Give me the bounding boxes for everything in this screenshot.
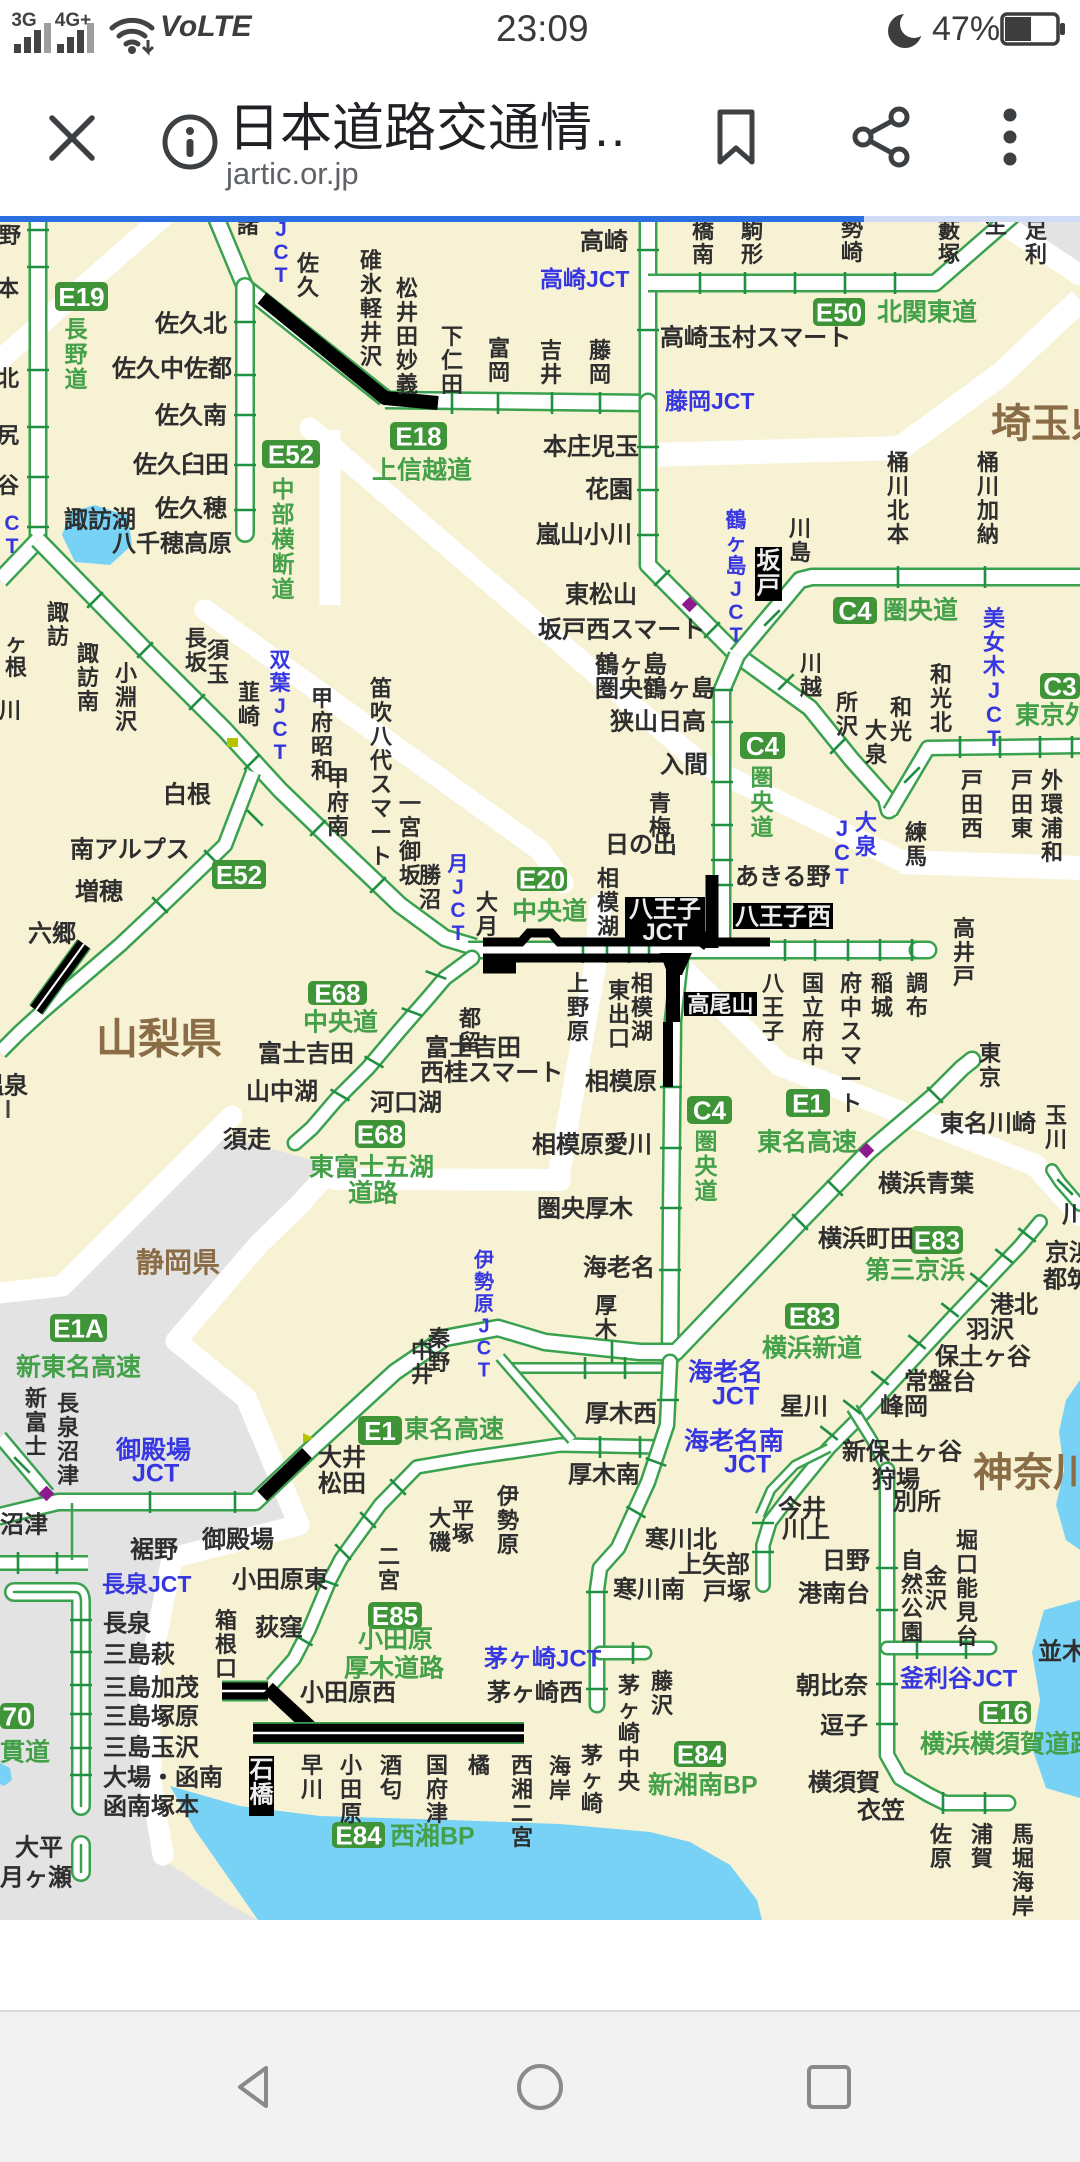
svg-text:厚木南: 厚木南: [568, 1462, 640, 1489]
svg-text:三島塚原: 三島塚原: [103, 1703, 199, 1731]
svg-text:茅ヶ崎JCT: 茅ヶ崎JCT: [484, 1646, 602, 1673]
svg-text:山梨県: 山梨県: [96, 1015, 222, 1062]
svg-text:所沢: 所沢: [836, 690, 859, 739]
svg-text:別所: 別所: [893, 1489, 941, 1516]
svg-text:70: 70: [3, 1701, 32, 1731]
svg-text:E68: E68: [314, 978, 360, 1008]
svg-text:相模湖: 相模湖: [597, 866, 620, 939]
svg-text:東京: 東京: [979, 1041, 1001, 1090]
svg-text:嵐山小川: 嵐山小川: [536, 521, 632, 549]
svg-text:二宮: 二宮: [378, 1544, 400, 1593]
svg-text:新東名高速: 新東名高速: [16, 1353, 141, 1382]
svg-text:外環浦和: 外環浦和: [1041, 768, 1064, 865]
svg-text:坂戸西スマート: 坂戸西スマート: [538, 617, 705, 644]
svg-text:金沢: 金沢: [924, 1564, 948, 1613]
svg-text:堀口能見台: 堀口能見台: [956, 1528, 978, 1649]
svg-text:相模原: 相模原: [585, 1069, 657, 1096]
svg-text:佐久中佐都: 佐久中佐都: [111, 356, 232, 383]
svg-text:平塚: 平塚: [452, 1498, 474, 1547]
svg-text:横浜新道: 横浜新道: [762, 1334, 862, 1363]
svg-text:東富士五湖: 東富士五湖: [309, 1153, 434, 1182]
svg-text:厚木西: 厚木西: [585, 1401, 657, 1428]
svg-text:相模原愛川: 相模原愛川: [532, 1132, 652, 1159]
svg-text:圏央道: 圏央道: [695, 1128, 719, 1204]
svg-text:E50: E50: [816, 297, 862, 327]
svg-text:勝沼: 勝沼: [419, 863, 442, 912]
svg-text:戸田西: 戸田西: [961, 768, 983, 841]
svg-text:E16: E16: [982, 1698, 1028, 1728]
svg-text:白根: 白根: [163, 781, 211, 809]
svg-text:日野: 日野: [822, 1548, 870, 1575]
svg-text:C4: C4: [693, 1095, 727, 1125]
svg-text:ヶ根: ヶ根: [5, 631, 27, 680]
svg-text:諏訪南: 諏訪南: [77, 641, 99, 714]
svg-text:松田: 松田: [318, 1471, 366, 1498]
svg-text:茅ヶ崎: 茅ヶ崎: [581, 1743, 603, 1816]
svg-text:保土ヶ谷: 保土ヶ谷: [934, 1344, 1032, 1371]
svg-text:温泉: 温泉: [0, 1072, 29, 1100]
svg-text:東京外: 東京外: [1015, 701, 1080, 730]
svg-text:海老名: 海老名: [583, 1254, 655, 1282]
svg-text:稲城: 稲城: [871, 971, 893, 1020]
svg-text:浦賀: 浦賀: [970, 1822, 993, 1871]
svg-text:東出口: 東出口: [608, 978, 630, 1051]
svg-text:上矢部: 上矢部: [678, 1551, 750, 1579]
svg-text:甲府南: 甲府南: [327, 766, 349, 839]
svg-text:C4: C4: [746, 731, 780, 761]
svg-text:中央道: 中央道: [512, 897, 587, 926]
svg-text:御殿場: 御殿場: [201, 1527, 274, 1554]
svg-text:月ヶ瀬: 月ヶ瀬: [0, 1865, 72, 1892]
svg-text:藤岡: 藤岡: [589, 338, 612, 387]
svg-text:南アルプス: 南アルプス: [70, 837, 190, 864]
svg-text:諏訪湖: 諏訪湖: [64, 506, 136, 534]
svg-text:C4: C4: [838, 596, 872, 626]
svg-text:高井戸: 高井戸: [953, 916, 975, 989]
svg-text:大泉: 大泉: [855, 810, 878, 859]
svg-text:寒川南: 寒川南: [613, 1576, 685, 1604]
svg-text:JCT: JCT: [132, 1460, 179, 1488]
svg-text:小田原東: 小田原東: [232, 1567, 328, 1594]
svg-text:大泉: 大泉: [865, 718, 888, 767]
svg-text:大平: 大平: [15, 1835, 63, 1862]
svg-text:E84: E84: [677, 1739, 724, 1769]
svg-text:都筑: 都筑: [1042, 1266, 1080, 1294]
svg-text:府中スマート: 府中スマート: [840, 971, 862, 1116]
svg-text:神奈川: 神奈川: [973, 1451, 1080, 1495]
svg-text:JCT: JCT: [724, 1451, 771, 1479]
svg-text:桶川北本: 桶川北本: [886, 450, 909, 547]
svg-text:東名高速: 東名高速: [757, 1128, 857, 1157]
svg-text:諏訪: 諏訪: [47, 600, 69, 649]
svg-text:石橋: 石橋: [249, 1757, 275, 1809]
svg-text:佐原: 佐原: [929, 1822, 952, 1871]
svg-text:港北: 港北: [990, 1292, 1038, 1319]
svg-text:小田原: 小田原: [358, 1626, 433, 1654]
svg-text:相模湖: 相模湖: [631, 971, 654, 1044]
svg-text:JCT: JCT: [642, 919, 688, 946]
svg-text:佐久北: 佐久北: [154, 311, 227, 338]
svg-text:桶川加納: 桶川加納: [976, 450, 999, 547]
svg-text:野: 野: [0, 223, 21, 248]
svg-text:富士吉田: 富士吉田: [425, 1034, 521, 1062]
svg-text:橘: 橘: [468, 1753, 490, 1778]
svg-text:川上: 川上: [782, 1517, 830, 1544]
svg-text:静岡県: 静岡県: [136, 1247, 220, 1278]
svg-text:戸田東: 戸田東: [1011, 768, 1033, 841]
svg-text:高尾山: 高尾山: [687, 992, 753, 1017]
svg-text:須玉: 須玉: [207, 638, 230, 687]
svg-text:JCT: JCT: [273, 222, 288, 287]
svg-text:大場・函南: 大場・函南: [103, 1765, 223, 1792]
svg-text:河口湖: 河口湖: [370, 1090, 442, 1117]
svg-text:八千穂高原: 八千穂高原: [112, 530, 232, 558]
svg-text:上信越道: 上信越道: [372, 456, 472, 485]
svg-text:小淵沢: 小淵沢: [115, 661, 138, 734]
svg-text:C3: C3: [1043, 671, 1076, 701]
svg-text:上野原: 上野原: [567, 971, 589, 1044]
svg-text:橋南: 橋南: [692, 222, 715, 267]
svg-text:衣笠: 衣笠: [857, 1797, 905, 1825]
svg-text:3G: 3G: [11, 10, 36, 31]
svg-text:山中湖: 山中湖: [246, 1079, 318, 1106]
svg-text:生: 生: [985, 222, 1007, 238]
svg-text:圏央道: 圏央道: [751, 764, 775, 840]
svg-text:小田原: 小田原: [340, 1753, 362, 1826]
svg-text:峰岡: 峰岡: [880, 1393, 928, 1421]
svg-text:函南塚本: 函南塚本: [103, 1794, 199, 1821]
svg-text:E83: E83: [914, 1225, 960, 1255]
svg-text:長坂: 長坂: [185, 626, 208, 675]
svg-text:笛吹八代スマート: 笛吹八代スマート: [369, 676, 393, 869]
svg-text:第三京浜: 第三京浜: [865, 1256, 965, 1285]
svg-text:沼津: 沼津: [0, 1512, 48, 1539]
svg-text:調布: 調布: [906, 971, 928, 1020]
svg-text:鶴ヶ島: 鶴ヶ島: [595, 651, 667, 679]
svg-text:吉井: 吉井: [540, 338, 562, 387]
svg-text:裾野: 裾野: [130, 1536, 178, 1564]
svg-text:京浜: 京浜: [1045, 1239, 1080, 1267]
svg-text:東名高速: 東名高速: [404, 1415, 504, 1444]
svg-text:東松山: 東松山: [565, 582, 637, 609]
svg-text:富岡: 富岡: [488, 336, 510, 385]
svg-text:伊勢原: 伊勢原: [496, 1484, 519, 1557]
svg-text:厚木: 厚木: [594, 1293, 618, 1342]
svg-text:高崎玉村スマート: 高崎玉村スマート: [660, 324, 851, 352]
svg-text:あきる野: あきる野: [735, 864, 831, 891]
svg-text:富士吉田: 富士吉田: [258, 1040, 354, 1068]
svg-text:八王子: 八王子: [762, 971, 785, 1044]
svg-text:新湘南BP: 新湘南BP: [648, 1771, 758, 1800]
svg-text:下仁田: 下仁田: [441, 324, 463, 397]
svg-text:E1: E1: [364, 1416, 396, 1446]
svg-text:早川: 早川: [300, 1753, 323, 1802]
svg-text:荻窪: 荻窪: [255, 1614, 303, 1642]
svg-text:厚木道路: 厚木道路: [344, 1654, 445, 1683]
svg-text:増穂: 増穂: [75, 878, 123, 906]
svg-text:自然公園: 自然公園: [901, 1548, 923, 1645]
svg-text:E20: E20: [519, 864, 565, 894]
svg-text:北関東道: 北関東道: [877, 298, 977, 327]
svg-text:玉川: 玉川: [1044, 1103, 1067, 1152]
svg-text:北: 北: [0, 366, 19, 391]
svg-text:国立府中: 国立府中: [802, 971, 824, 1068]
svg-text:谷: 谷: [0, 473, 20, 498]
svg-text:圏央道: 圏央道: [883, 596, 958, 625]
svg-text:横浜横須賀道路: 横浜横須賀道路: [920, 1730, 1080, 1759]
svg-text:碓氷軽井沢: 碓氷軽井沢: [360, 248, 383, 369]
svg-text:長泉: 長泉: [103, 1610, 152, 1638]
svg-text:藤沢: 藤沢: [651, 1669, 674, 1718]
svg-text:圏央厚木: 圏央厚木: [537, 1196, 634, 1223]
svg-text:韮崎: 韮崎: [238, 680, 260, 729]
svg-text:三島加茂: 三島加茂: [103, 1674, 199, 1702]
svg-text:横須賀: 横須賀: [808, 1769, 880, 1797]
svg-text:朝比奈: 朝比奈: [796, 1673, 869, 1700]
svg-text:E18: E18: [395, 421, 441, 451]
svg-text:逗子: 逗子: [820, 1713, 868, 1740]
svg-text:海岸: 海岸: [549, 1754, 571, 1803]
svg-text:小田原西: 小田原西: [300, 1680, 396, 1707]
svg-text:港南台: 港南台: [798, 1580, 870, 1608]
svg-text:常盤台: 常盤台: [904, 1368, 976, 1396]
svg-text:E1: E1: [792, 1088, 824, 1118]
svg-text:星川: 星川: [780, 1394, 828, 1421]
svg-text:高崎: 高崎: [580, 228, 628, 256]
svg-text:本: 本: [0, 276, 19, 301]
svg-text:長泉沼津: 長泉沼津: [57, 1391, 80, 1488]
svg-text:大磯: 大磯: [429, 1506, 451, 1555]
svg-text:長泉JCT: 長泉JCT: [102, 1571, 191, 1597]
svg-text:中井: 中井: [411, 1338, 433, 1387]
svg-text:高崎JCT: 高崎JCT: [540, 266, 629, 292]
svg-text:CT: CT: [4, 512, 19, 558]
svg-text:JCT: JCT: [834, 816, 850, 889]
svg-text:川越: 川越: [799, 651, 823, 700]
svg-text:貫道: 貫道: [0, 1738, 50, 1767]
svg-text:佐久南: 佐久南: [154, 403, 227, 430]
svg-text:西湘二宮: 西湘二宮: [511, 1753, 533, 1850]
svg-text:4G+: 4G+: [55, 10, 91, 31]
svg-text:E52: E52: [268, 439, 314, 469]
svg-text:川: 川: [0, 698, 21, 723]
svg-text:埼玉県: 埼玉県: [991, 402, 1080, 446]
svg-text:茅ヶ崎中央: 茅ヶ崎中央: [618, 1673, 641, 1794]
svg-text:坂戸: 坂戸: [757, 548, 782, 600]
svg-text:新富士: 新富士: [25, 1386, 47, 1459]
svg-text:JCT: JCT: [712, 1383, 759, 1411]
svg-text:E83: E83: [789, 1301, 835, 1331]
svg-text:藪塚: 藪塚: [938, 222, 960, 267]
svg-text:大月: 大月: [475, 890, 498, 939]
svg-text:勢崎: 勢崎: [841, 222, 863, 265]
svg-text:入間: 入間: [660, 752, 708, 779]
svg-text:大井: 大井: [318, 1445, 366, 1472]
svg-text:道路: 道路: [348, 1179, 399, 1208]
svg-text:和光北: 和光北: [929, 662, 952, 735]
svg-text:羽沢: 羽沢: [966, 1317, 1015, 1344]
svg-text:和光: 和光: [889, 695, 912, 744]
svg-text:三島玉沢: 三島玉沢: [103, 1734, 200, 1762]
svg-text:箱根口: 箱根口: [215, 1608, 237, 1681]
svg-text:酒匂: 酒匂: [379, 1753, 402, 1802]
svg-text:花園: 花園: [585, 477, 633, 504]
svg-text:須走: 須走: [223, 1127, 271, 1154]
svg-text:西桂スマート: 西桂スマート: [420, 1060, 563, 1087]
svg-text:並木: 並木: [1038, 1638, 1080, 1666]
svg-text:横浜青葉: 横浜青葉: [878, 1170, 975, 1198]
svg-text:松井田妙義: 松井田妙義: [396, 276, 418, 397]
svg-text:東名川崎: 東名川崎: [940, 1110, 1036, 1138]
svg-text:八王子西: 八王子西: [735, 904, 831, 931]
svg-text:尻: 尻: [0, 423, 19, 448]
svg-text:日の出: 日の出: [605, 832, 677, 859]
svg-text:長野道: 長野道: [65, 316, 89, 392]
svg-text:佐久臼田: 佐久臼田: [132, 451, 229, 479]
svg-text:佐久穂: 佐久穂: [154, 496, 227, 523]
svg-text:中央道: 中央道: [303, 1008, 378, 1037]
svg-text:佐久: 佐久: [296, 251, 319, 300]
svg-text:諸: 諸: [237, 222, 259, 238]
svg-text:E52: E52: [216, 860, 262, 890]
svg-text:川: 川: [1062, 1202, 1080, 1229]
svg-text:本庄児玉: 本庄児玉: [543, 433, 639, 461]
svg-text:三島萩: 三島萩: [103, 1641, 175, 1669]
svg-text:E19: E19: [58, 282, 104, 312]
svg-text:駒形: 駒形: [741, 222, 763, 267]
svg-text:茅ヶ崎西: 茅ヶ崎西: [487, 1680, 583, 1707]
svg-text:新保土ヶ谷: 新保土ヶ谷: [842, 1438, 963, 1466]
svg-text:E68: E68: [357, 1119, 403, 1149]
svg-text:圏央鶴ヶ島: 圏央鶴ヶ島: [595, 675, 715, 703]
svg-text:足利: 足利: [1025, 222, 1047, 267]
svg-text:E1A: E1A: [53, 1313, 104, 1343]
svg-text:戸塚: 戸塚: [703, 1579, 751, 1606]
svg-text:川島: 川島: [788, 516, 811, 565]
svg-text:寒川北: 寒川北: [645, 1526, 717, 1554]
svg-text:狭山日高: 狭山日高: [609, 708, 706, 736]
svg-text:国府津: 国府津: [426, 1753, 448, 1826]
svg-text:藤岡JCT: 藤岡JCT: [665, 388, 754, 414]
svg-text:横浜町田: 横浜町田: [818, 1225, 914, 1253]
svg-text:中部横断道: 中部横断道: [272, 476, 295, 602]
svg-text:練馬: 練馬: [905, 820, 927, 869]
svg-text:馬堀海岸: 馬堀海岸: [1012, 1822, 1034, 1919]
svg-text:釜利谷JCT: 釜利谷JCT: [899, 1665, 1018, 1693]
svg-text:六郷: 六郷: [28, 921, 76, 948]
